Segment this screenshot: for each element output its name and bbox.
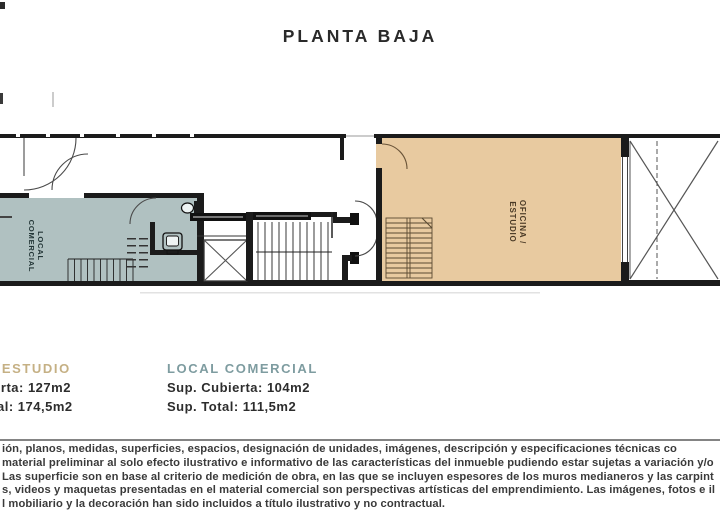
legend-local-sup-total: Sup. Total: 111,5m2 <box>167 399 296 414</box>
disclaimer-line-1: ión, planos, medidas, superficies, espac… <box>2 443 720 457</box>
disclaimer-line-5: l mobiliario y la decoración han sido in… <box>2 498 720 512</box>
legend-oficina-title: OFICINA/ESTUDIO <box>0 361 71 376</box>
disclaimer-line-2: material preliminar al solo efecto ilust… <box>2 457 720 471</box>
edge-artifacts <box>0 2 53 107</box>
garage-void-area <box>621 138 718 281</box>
void-box <box>197 236 247 281</box>
svg-text:ESTUDIO: ESTUDIO <box>508 201 517 242</box>
corridor-doors <box>333 201 377 281</box>
svg-text:LOCAL: LOCAL <box>36 231 45 261</box>
legend-oficina-sup-cubierta: Sup. Cubierta: 127m2 <box>0 380 71 395</box>
svg-text:OFICINA /: OFICINA / <box>518 200 527 244</box>
room-oficina-estudio <box>340 134 621 281</box>
legend-local-sup-cubierta: Sup. Cubierta: 104m2 <box>167 380 310 395</box>
svg-text:COMERCIAL: COMERCIAL <box>27 220 36 273</box>
disclaimer-text: ión, planos, medidas, superficies, espac… <box>2 443 720 512</box>
entrance-door-arcs <box>24 138 88 190</box>
stairs-core <box>246 212 332 281</box>
legend-local-title: LOCAL COMERCIAL <box>167 361 318 376</box>
legend-oficina-sup-total: Sup. Total: 174,5m2 <box>0 399 73 414</box>
disclaimer-line-3: Las superficie son en base al criterio d… <box>2 471 720 485</box>
room-label-oficina-estudio: OFICINA / ESTUDIO <box>508 200 527 244</box>
elevator-bars <box>190 212 337 221</box>
separator-line <box>0 439 720 441</box>
floorplan-page: { "title": "PLANTA BAJA", "plan": { "wal… <box>0 0 720 532</box>
disclaimer-line-4: s, videos y maquetas presentadas en el m… <box>2 484 720 498</box>
